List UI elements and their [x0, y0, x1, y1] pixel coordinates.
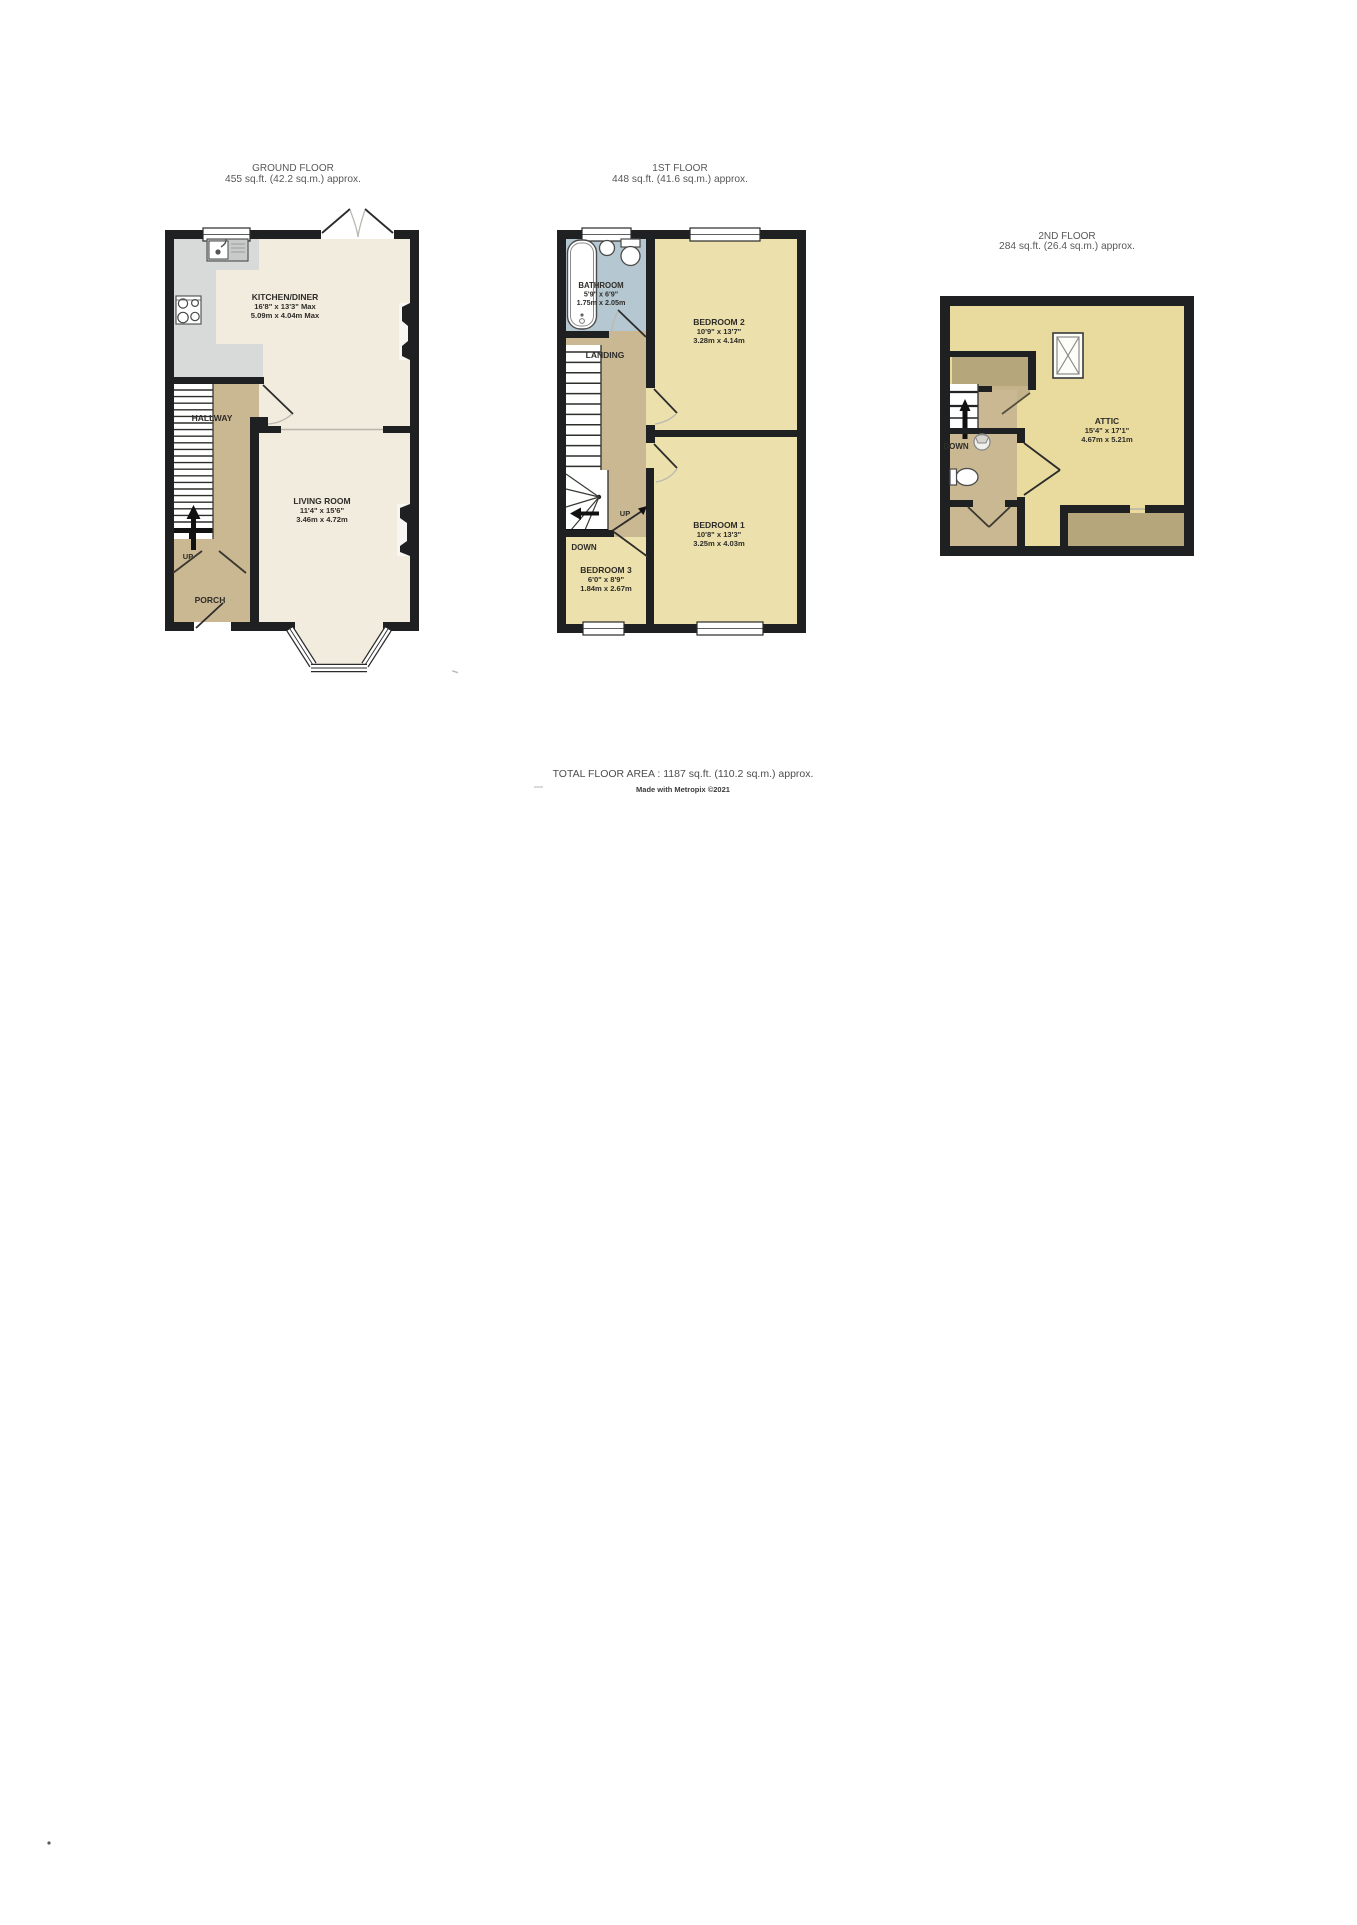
svg-text:10'9" x 13'7": 10'9" x 13'7"	[697, 327, 742, 336]
svg-text:Made with Metropix ©2021: Made with Metropix ©2021	[636, 785, 730, 794]
svg-text:DOWN: DOWN	[571, 543, 597, 552]
svg-text:HALLWAY: HALLWAY	[192, 413, 233, 423]
svg-text:3.28m x 4.14m: 3.28m x 4.14m	[693, 336, 745, 345]
svg-text:4.67m x 5.21m: 4.67m x 5.21m	[1081, 435, 1133, 444]
svg-text:UP: UP	[620, 509, 630, 518]
svg-text:BEDROOM 2: BEDROOM 2	[693, 317, 745, 327]
svg-text:3.25m x 4.03m: 3.25m x 4.03m	[693, 539, 745, 548]
svg-text:PORCH: PORCH	[195, 595, 226, 605]
svg-text:16'8" x 13'3" Max: 16'8" x 13'3" Max	[254, 302, 316, 311]
svg-text:BEDROOM 3: BEDROOM 3	[580, 565, 632, 575]
svg-text:ATTIC: ATTIC	[1095, 416, 1119, 426]
svg-text:3.46m x 4.72m: 3.46m x 4.72m	[296, 515, 348, 524]
svg-text:DOWN: DOWN	[943, 442, 969, 451]
svg-text:448 sq.ft. (41.6 sq.m.) approx: 448 sq.ft. (41.6 sq.m.) approx.	[612, 174, 748, 185]
svg-text:6'0" x 8'9": 6'0" x 8'9"	[588, 575, 625, 584]
svg-text:5.09m x 4.04m Max: 5.09m x 4.04m Max	[251, 311, 320, 320]
svg-text:1ST FLOOR: 1ST FLOOR	[652, 163, 707, 174]
svg-text:GROUND FLOOR: GROUND FLOOR	[252, 163, 334, 174]
svg-text:LIVING ROOM: LIVING ROOM	[293, 496, 350, 506]
svg-text:1.84m x 2.67m: 1.84m x 2.67m	[580, 584, 632, 593]
svg-text:UP: UP	[183, 552, 193, 561]
svg-text:TOTAL FLOOR AREA : 1187 sq.ft.: TOTAL FLOOR AREA : 1187 sq.ft. (110.2 sq…	[553, 768, 814, 780]
svg-text:1.75m x 2.05m: 1.75m x 2.05m	[577, 298, 626, 307]
svg-text:455 sq.ft. (42.2 sq.m.) approx: 455 sq.ft. (42.2 sq.m.) approx.	[225, 174, 361, 185]
svg-text:BEDROOM 1: BEDROOM 1	[693, 520, 745, 530]
svg-text:11'4" x 15'6": 11'4" x 15'6"	[300, 506, 345, 515]
svg-text:KITCHEN/DINER: KITCHEN/DINER	[252, 292, 319, 302]
svg-text:15'4" x 17'1": 15'4" x 17'1"	[1085, 426, 1130, 435]
svg-text:284 sq.ft. (26.4 sq.m.) approx: 284 sq.ft. (26.4 sq.m.) approx.	[999, 241, 1135, 252]
svg-text:10'8" x 13'3": 10'8" x 13'3"	[697, 530, 742, 539]
svg-text:LANDING: LANDING	[586, 350, 625, 360]
